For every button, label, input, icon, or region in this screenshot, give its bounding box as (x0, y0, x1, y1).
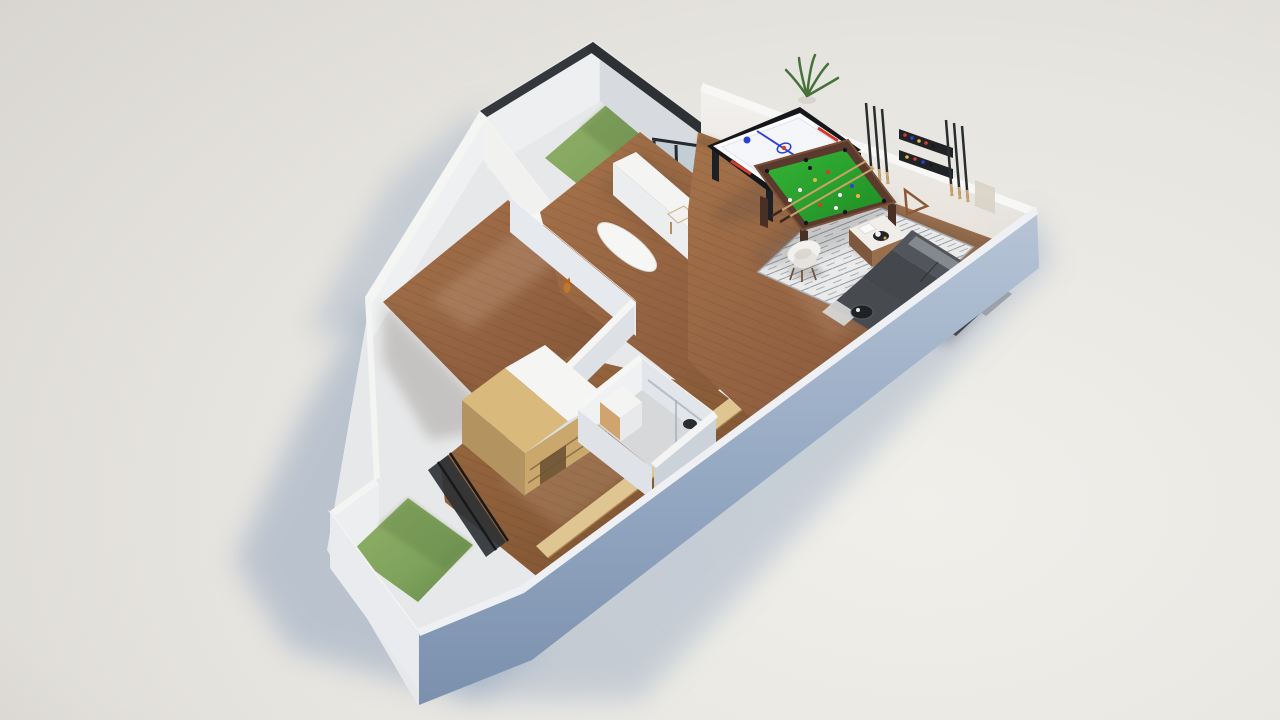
floorplan-canvas (0, 0, 1280, 720)
floorplan-3d-render (0, 0, 1280, 720)
cat (564, 283, 571, 293)
sofa-tray-ball (856, 308, 860, 312)
plant-leaves (786, 55, 838, 96)
air-hockey-center-dot (782, 146, 786, 150)
coffee-table-gold-dot (884, 237, 887, 240)
sofa-tray (851, 305, 873, 319)
pool-table-leg-1 (760, 196, 768, 228)
coffee-table-ball (875, 231, 881, 237)
coffee-table-tray (873, 231, 889, 241)
